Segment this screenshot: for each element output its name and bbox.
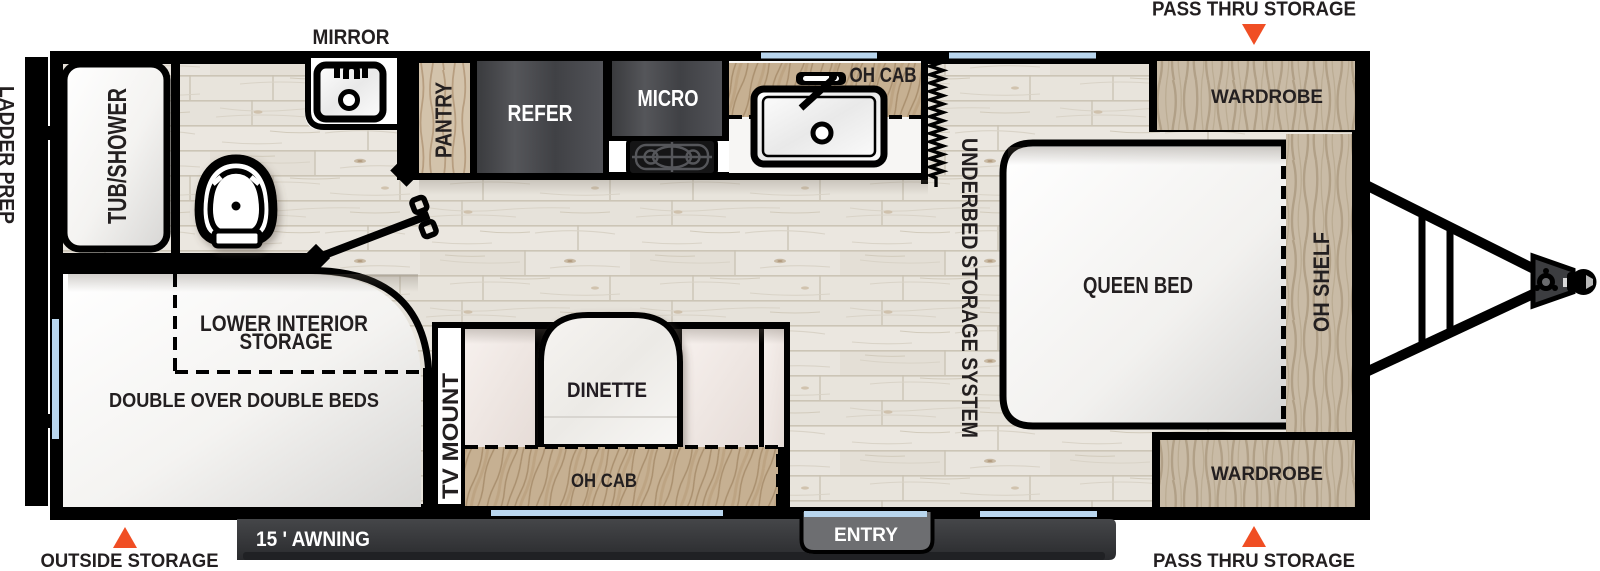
svg-text:PASS THRU STORAGE: PASS THRU STORAGE [1153,551,1355,571]
svg-text:DOUBLE OVER DOUBLE BEDS: DOUBLE OVER DOUBLE BEDS [109,390,379,412]
svg-text:TUB/SHOWER: TUB/SHOWER [102,88,132,224]
svg-text:PASS THRU STORAGE: PASS THRU STORAGE [1152,0,1356,21]
svg-text:PANTRY: PANTRY [431,82,457,158]
svg-text:MIRROR: MIRROR [313,26,390,49]
svg-text:QUEEN BED: QUEEN BED [1083,272,1193,298]
svg-text:OH CAB: OH CAB [571,471,637,492]
svg-text:OH CAB: OH CAB [850,64,917,87]
svg-text:OH SHELF: OH SHELF [1309,232,1334,332]
svg-text:MICRO: MICRO [638,85,699,111]
svg-text:WARDROBE: WARDROBE [1211,464,1323,485]
svg-text:ENTRY: ENTRY [834,525,898,546]
svg-text:REFER: REFER [508,100,573,126]
svg-text:OUTSIDE STORAGE: OUTSIDE STORAGE [41,551,219,571]
svg-text:STORAGE: STORAGE [240,329,333,354]
svg-text:15 ' AWNING: 15 ' AWNING [256,528,370,551]
svg-text:DINETTE: DINETTE [567,379,647,402]
svg-text:TV MOUNT: TV MOUNT [438,372,463,499]
svg-text:UNDERBED STORAGE SYSTEM: UNDERBED STORAGE SYSTEM [957,138,982,438]
svg-text:LADDER PREP: LADDER PREP [0,86,17,224]
svg-text:WARDROBE: WARDROBE [1211,87,1323,108]
